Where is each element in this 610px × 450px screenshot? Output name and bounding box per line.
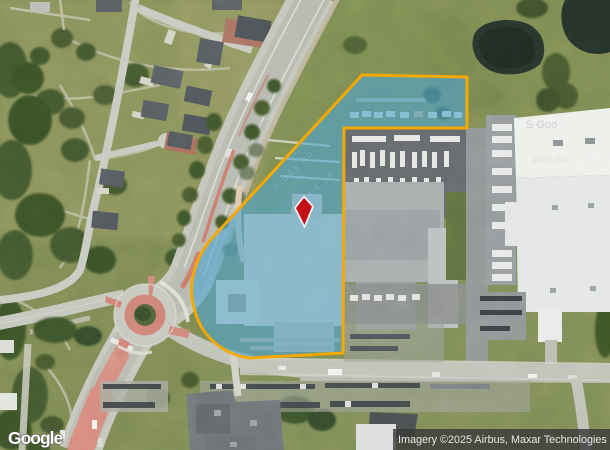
svg-text:Imagery ©2025 Airbus, Maxar Te: Imagery ©2025 Airbus, Maxar Technologies: [398, 434, 607, 446]
svg-text:Google: Google: [8, 428, 64, 448]
